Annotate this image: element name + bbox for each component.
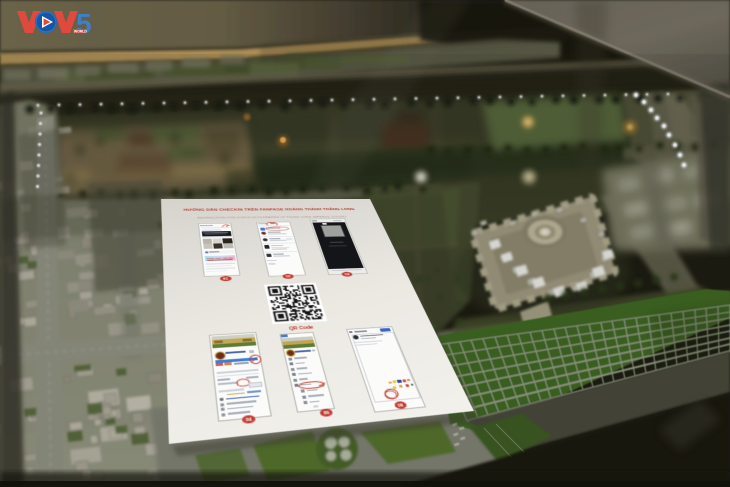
svg-text:WORLD: WORLD bbox=[74, 29, 87, 33]
